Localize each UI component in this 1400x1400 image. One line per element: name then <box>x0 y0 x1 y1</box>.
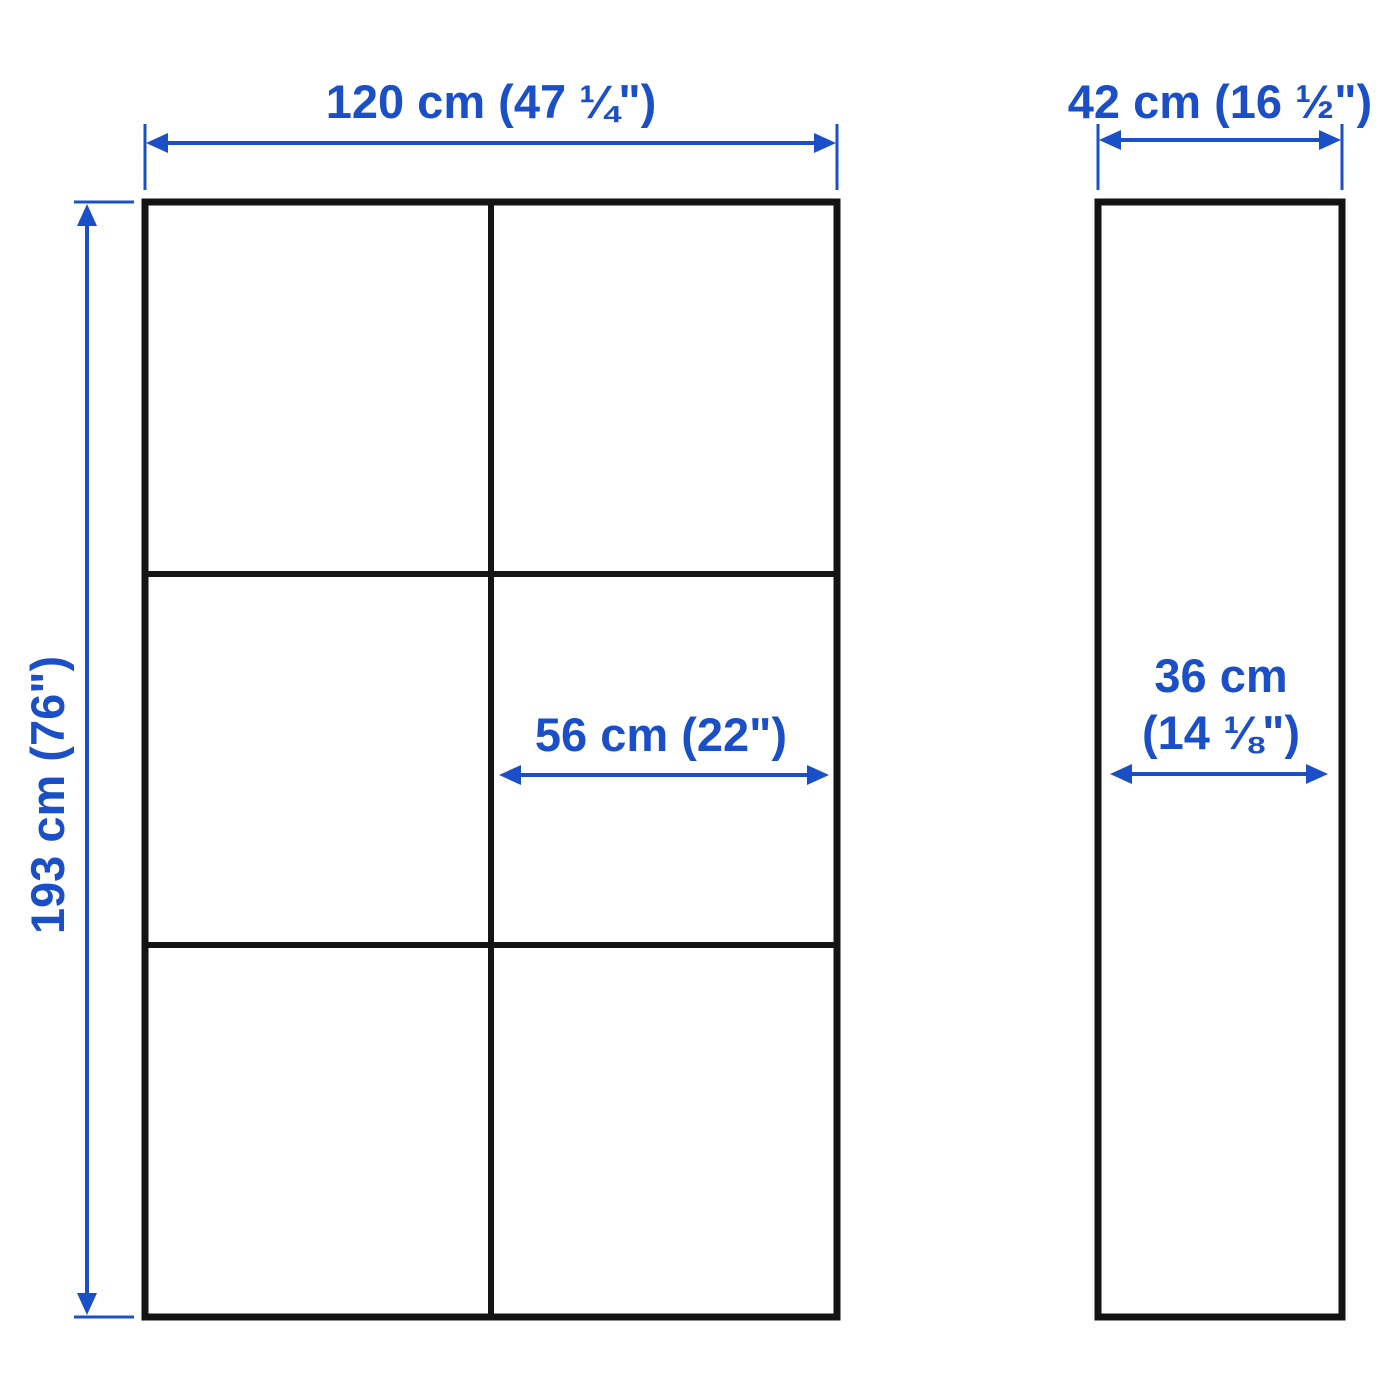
inner-depth-label-line1: 36 cm <box>1154 649 1287 702</box>
overall-height-label: 193 cm (76") <box>21 656 74 934</box>
arrowhead-right-icon <box>1306 764 1328 784</box>
arrowhead-right-icon <box>1319 130 1341 150</box>
overall-width-label: 120 cm (47 ¼") <box>326 75 657 128</box>
overall-width-dimension: 120 cm (47 ¼") <box>145 75 837 190</box>
side-view <box>1098 202 1342 1317</box>
product-dimension-diagram: 120 cm (47 ¼") 193 cm (76") 56 cm (22") … <box>0 0 1400 1400</box>
arrowhead-right-icon <box>807 765 829 785</box>
inner-depth-label-line2: (14 ⅛") <box>1142 706 1300 759</box>
overall-depth-dimension: 42 cm (16 ½") <box>1068 75 1372 190</box>
arrowhead-left-icon <box>1110 764 1132 784</box>
arrowhead-left-icon <box>146 133 168 153</box>
arrowhead-down-icon <box>77 1293 97 1315</box>
arrowhead-left-icon <box>499 765 521 785</box>
overall-depth-label: 42 cm (16 ½") <box>1068 75 1372 128</box>
dimension-diagram-canvas: 120 cm (47 ¼") 193 cm (76") 56 cm (22") … <box>0 0 1400 1400</box>
inner-depth-dimension: 36 cm (14 ⅛") <box>1110 649 1328 784</box>
compartment-width-label: 56 cm (22") <box>535 708 787 761</box>
compartment-width-dimension: 56 cm (22") <box>499 708 829 785</box>
side-view-outline <box>1098 202 1342 1317</box>
overall-height-dimension: 193 cm (76") <box>21 202 134 1317</box>
arrowhead-up-icon <box>77 204 97 226</box>
arrowhead-right-icon <box>814 133 836 153</box>
arrowhead-left-icon <box>1099 130 1121 150</box>
